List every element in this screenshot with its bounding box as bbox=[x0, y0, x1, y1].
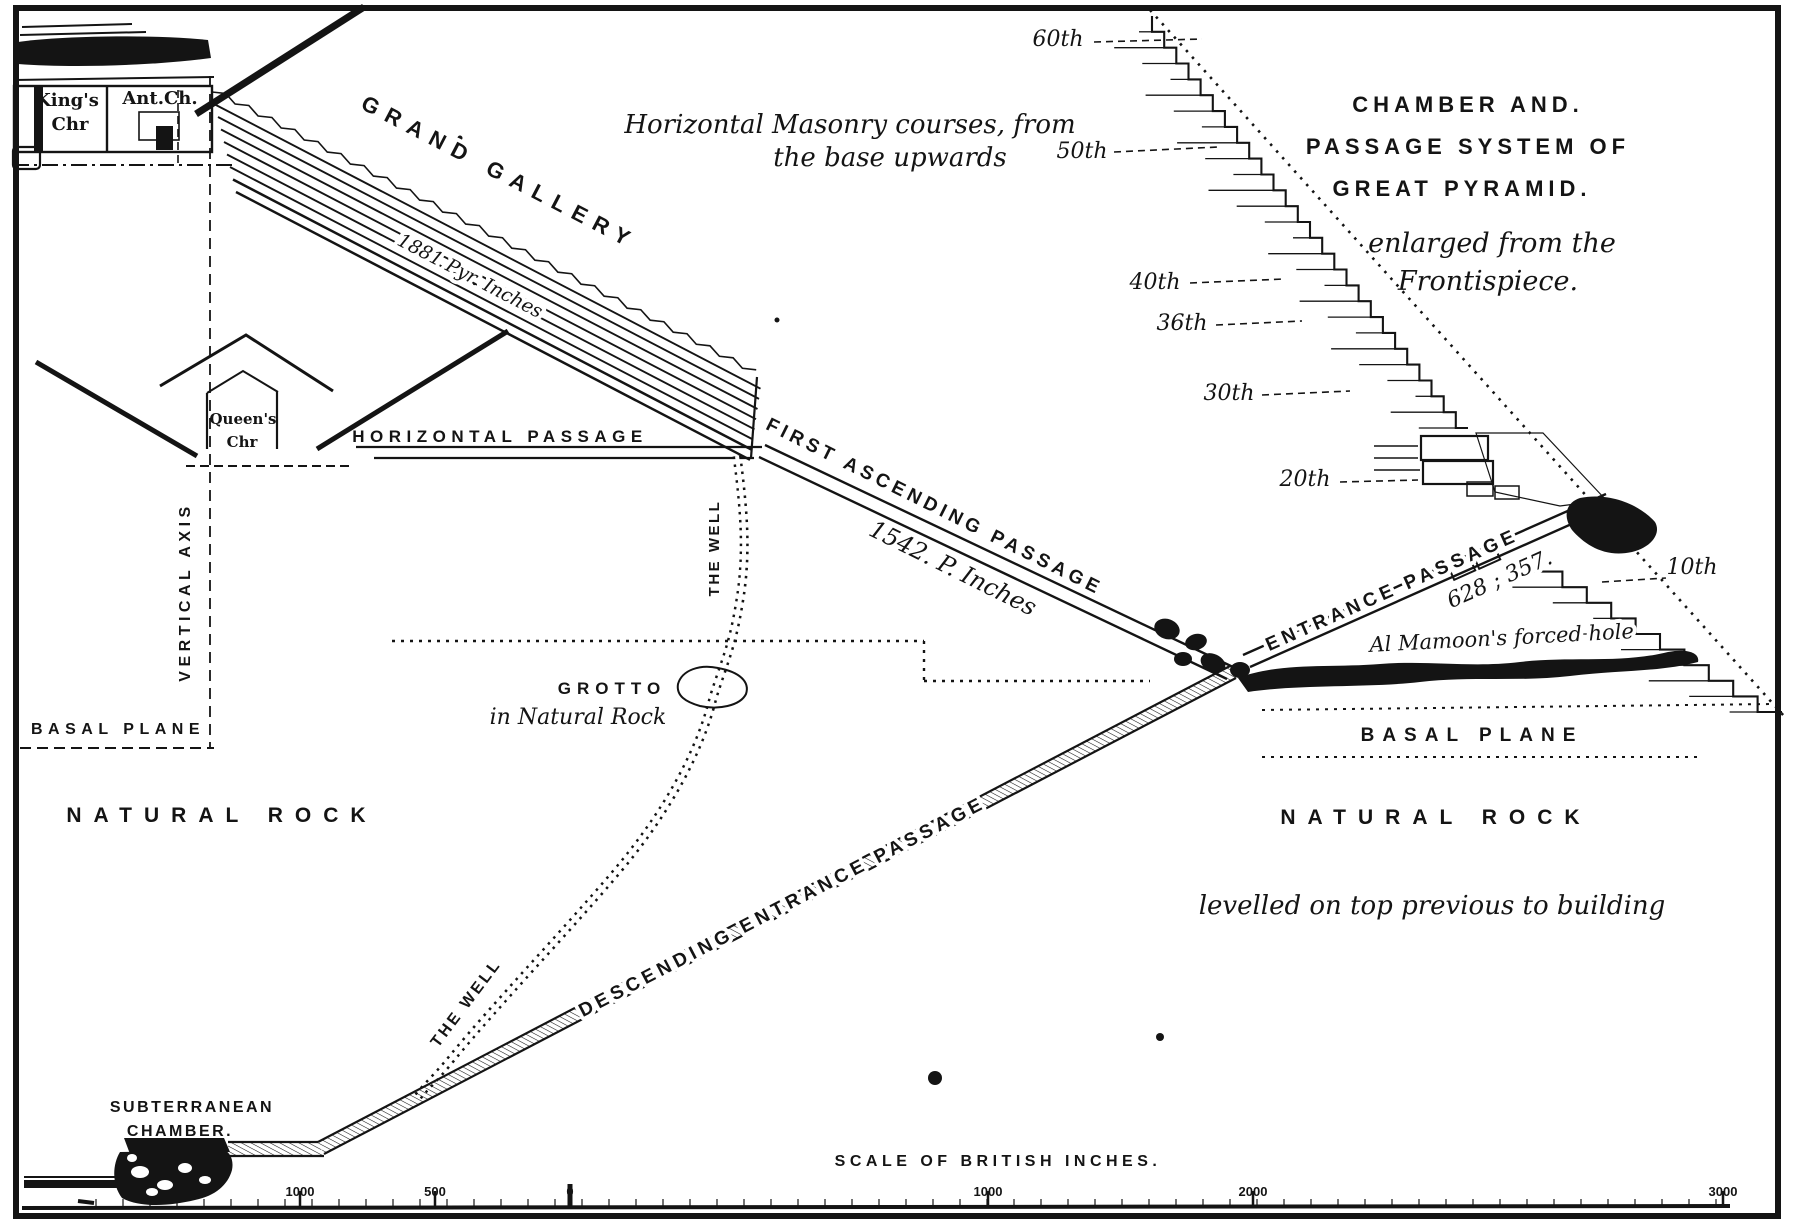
air-channel-line bbox=[196, 7, 364, 114]
granite-plug-blobs bbox=[1151, 615, 1250, 678]
scale-title-label: SCALE OF BRITISH INCHES. bbox=[835, 1153, 1162, 1170]
course-label-40th: 40th bbox=[1128, 270, 1180, 295]
grotto-sub-label: in Natural Rock bbox=[490, 705, 667, 730]
course-label-36th: 36th bbox=[1156, 311, 1207, 336]
first-ascending-passage bbox=[759, 445, 1233, 679]
ante-chamber-label: Ant.Ch. bbox=[121, 88, 197, 109]
scale-tick-label-0: 1000 bbox=[286, 1184, 315, 1199]
engraving-page: CHAMBER AND. PASSAGE SYSTEM OF GREAT PYR… bbox=[0, 0, 1794, 1226]
title-line-1: CHAMBER AND. bbox=[1352, 92, 1584, 117]
subterranean-label-2: CHAMBER. bbox=[127, 1123, 233, 1140]
queens-chamber-label-1: Queen's bbox=[209, 410, 276, 428]
horizontal-passage-label: HORIZONTAL PASSAGE bbox=[352, 427, 647, 446]
basal-plane-right-label: BASAL PLANE bbox=[1361, 725, 1584, 746]
scale-tick-label-4: 2000 bbox=[1239, 1184, 1268, 1199]
title-subline-1: enlarged from the bbox=[1368, 228, 1616, 259]
ink-spots bbox=[458, 136, 1165, 1086]
course-label-60th: 60th bbox=[1032, 27, 1083, 52]
scale-tick-label-3: 1000 bbox=[974, 1184, 1003, 1199]
natural-rock-right-label: NATURAL ROCK bbox=[1280, 806, 1591, 829]
course-label-20th: 20th bbox=[1278, 467, 1330, 492]
masonry-note-line-2: the base upwards bbox=[773, 143, 1007, 173]
horizontal-passage bbox=[356, 447, 762, 458]
entrance-mouth-blob bbox=[1567, 497, 1657, 554]
scale-bar bbox=[22, 1184, 1730, 1208]
grotto-label: GROTTO bbox=[558, 679, 666, 698]
title-subline-2: Frontispiece. bbox=[1397, 266, 1578, 297]
portcullis-block bbox=[156, 126, 173, 150]
course-label-10th: 10th bbox=[1666, 555, 1717, 580]
ascending-length-label: 1542. P. Inches bbox=[865, 515, 1041, 622]
pyramid-diagram: CHAMBER AND. PASSAGE SYSTEM OF GREAT PYR… bbox=[0, 0, 1794, 1226]
rock-surface-dotted-lines bbox=[392, 641, 1150, 681]
levelled-note-label: levelled on top previous to building bbox=[1199, 891, 1666, 921]
natural-rock-left-label: NATURAL ROCK bbox=[66, 804, 377, 827]
grand-gallery-label: GRAND GALLERY bbox=[357, 90, 642, 254]
queens-chamber-label-2: Chr bbox=[227, 433, 259, 451]
scale-tick-label-5: 3000 bbox=[1709, 1184, 1738, 1199]
kings-chamber-label-2: Chr bbox=[52, 114, 89, 135]
course-label-50th: 50th bbox=[1056, 139, 1107, 164]
subterranean-chamber bbox=[24, 1138, 233, 1205]
scale-ticks bbox=[96, 1184, 1723, 1207]
descending-passage-label: DESCENDING ENTRANCE PASSAGE bbox=[575, 793, 989, 1022]
masonry-course-steps bbox=[1114, 16, 1782, 712]
scale-tick-label-2: 0 bbox=[566, 1184, 573, 1199]
scale-tick-label-1: 500 bbox=[424, 1184, 446, 1199]
al-mamoon-hole-band bbox=[1238, 651, 1698, 692]
basal-plane-left-label: BASAL PLANE bbox=[31, 721, 205, 738]
subterranean-label-1: SUBTERRANEAN bbox=[110, 1099, 274, 1116]
relieving-chamber-band bbox=[18, 36, 211, 66]
queens-air-channel-left bbox=[36, 362, 197, 456]
course-label-30th: 30th bbox=[1203, 381, 1254, 406]
well-lower-label: THE WELL bbox=[428, 956, 505, 1051]
masonry-note-line-1: Horizontal Masonry courses, from bbox=[623, 110, 1075, 140]
descending-entrance-passage bbox=[228, 666, 1236, 1156]
vertical-axis-label: VERTICAL AXIS bbox=[177, 502, 194, 681]
title-line-3: GREAT PYRAMID. bbox=[1332, 176, 1591, 201]
well-upper-label: THE WELL bbox=[706, 500, 723, 597]
title-line-2: PASSAGE SYSTEM OF bbox=[1306, 134, 1630, 159]
al-mamoon-label: Al Mamoon's forced hole bbox=[1367, 619, 1635, 657]
kings-chamber-label-1: King's bbox=[35, 90, 99, 111]
